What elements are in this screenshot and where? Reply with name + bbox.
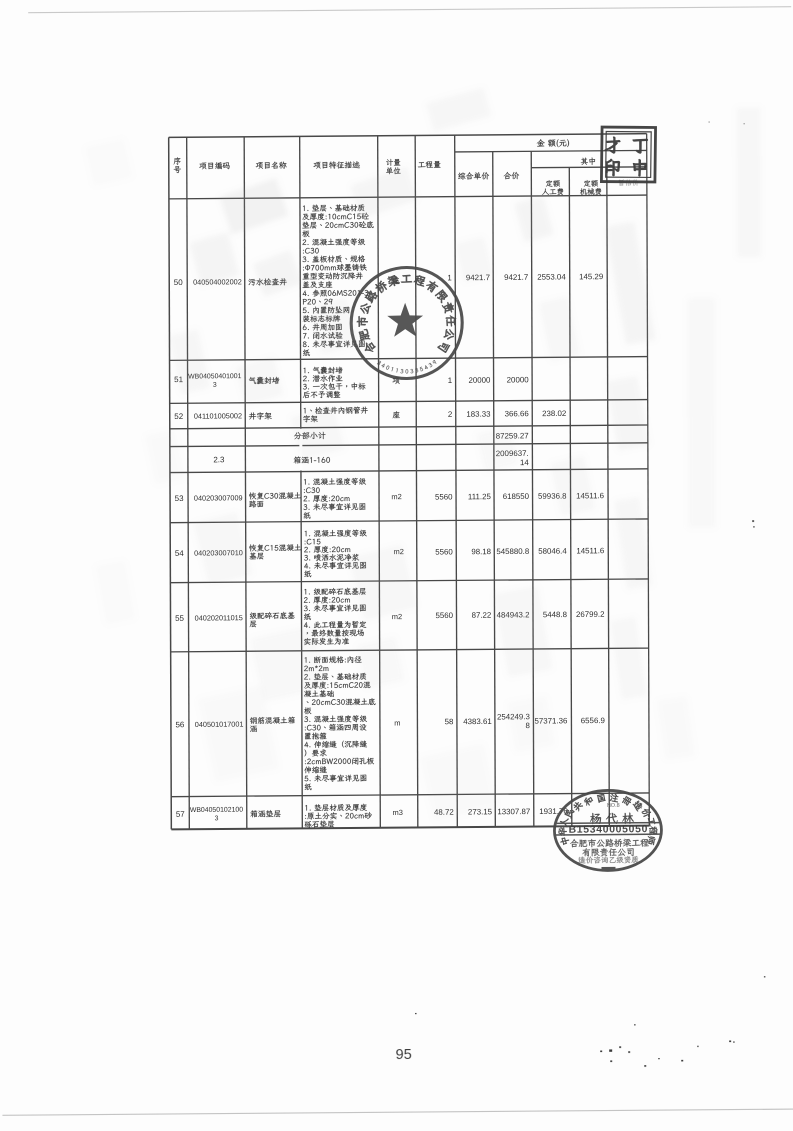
svg-text:98.18: 98.18 — [471, 547, 491, 556]
svg-text:26799.2: 26799.2 — [576, 610, 605, 619]
svg-text:14: 14 — [520, 458, 529, 467]
svg-text:14511.6: 14511.6 — [576, 546, 605, 555]
svg-text:145.29: 145.29 — [579, 272, 604, 281]
svg-text:238.02: 238.02 — [542, 409, 566, 418]
svg-text:95: 95 — [396, 1047, 412, 1063]
svg-text:WB04050102100: WB04050102100 — [190, 807, 243, 814]
svg-text:366.66: 366.66 — [505, 409, 530, 418]
svg-text:9421.7: 9421.7 — [504, 273, 528, 282]
svg-text:20000: 20000 — [468, 376, 491, 385]
svg-text:m3: m3 — [393, 808, 403, 817]
svg-text:58046.4: 58046.4 — [538, 547, 567, 556]
svg-text:183.33: 183.33 — [466, 410, 491, 419]
svg-text:1: 1 — [448, 376, 452, 385]
svg-text:5560: 5560 — [435, 492, 453, 501]
svg-text:3: 3 — [215, 815, 219, 822]
svg-text:53: 53 — [175, 494, 184, 503]
svg-text:55: 55 — [175, 614, 184, 623]
svg-text:5560: 5560 — [435, 547, 453, 556]
svg-text:3: 3 — [213, 382, 217, 389]
svg-text:040202011015: 040202011015 — [195, 613, 243, 622]
svg-text:041101005002: 041101005002 — [194, 411, 242, 420]
svg-text:m: m — [394, 718, 400, 727]
svg-text:20000: 20000 — [507, 375, 530, 384]
svg-text:6556.9: 6556.9 — [581, 716, 606, 725]
svg-text:NO.8: NO.8 — [607, 803, 620, 809]
svg-text:54: 54 — [175, 549, 184, 558]
svg-text:52: 52 — [174, 412, 183, 421]
svg-text:50: 50 — [174, 278, 183, 287]
svg-text:13307.87: 13307.87 — [497, 807, 530, 816]
svg-text:2: 2 — [448, 410, 452, 419]
svg-text:545880.8: 545880.8 — [496, 547, 530, 556]
svg-text:87.22: 87.22 — [472, 611, 492, 620]
svg-text:5560: 5560 — [435, 611, 453, 620]
svg-text:B15340005050: B15340005050 — [569, 824, 649, 836]
svg-text:4383.61: 4383.61 — [463, 717, 492, 726]
svg-text:57: 57 — [176, 810, 185, 819]
svg-text:618550: 618550 — [503, 492, 530, 501]
svg-text:56: 56 — [175, 720, 184, 729]
svg-text:1: 1 — [447, 273, 451, 282]
svg-text:5448.8: 5448.8 — [543, 610, 568, 619]
svg-text:2.3: 2.3 — [213, 455, 225, 464]
svg-text:111.25: 111.25 — [468, 492, 492, 501]
svg-text:58: 58 — [445, 717, 454, 726]
svg-text:2553.04: 2553.04 — [537, 272, 566, 281]
svg-text:m2: m2 — [391, 492, 401, 501]
svg-text:040203007009: 040203007009 — [194, 493, 243, 502]
